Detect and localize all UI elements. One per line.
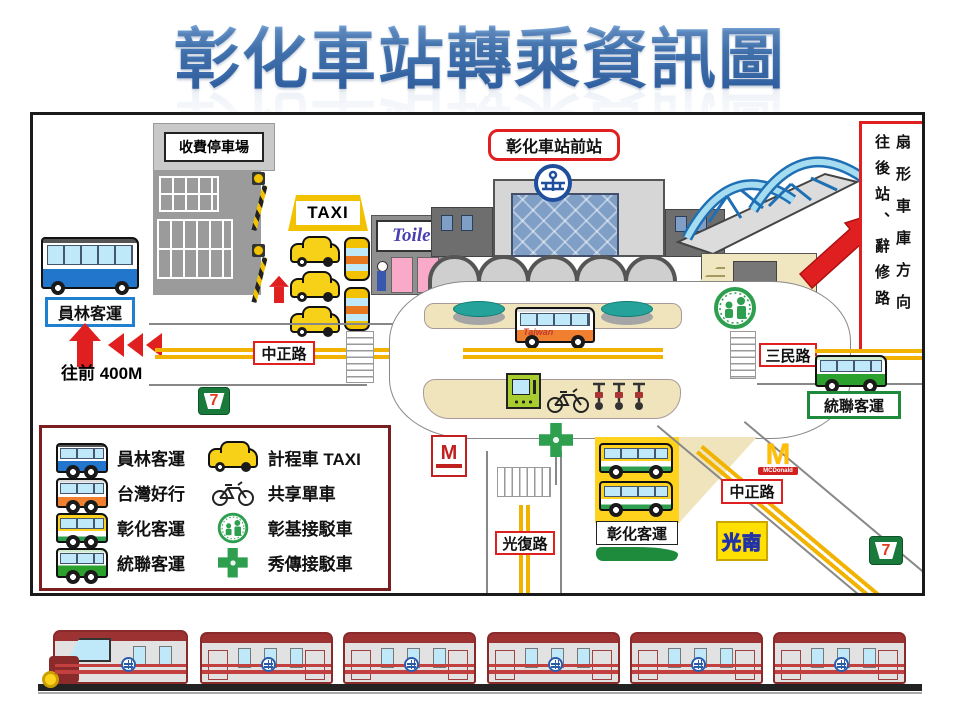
legend-item: 秀傳接駁車 <box>207 547 380 578</box>
crosswalk <box>730 331 756 379</box>
taxi-sign-label: TAXI <box>296 201 360 225</box>
train-car <box>343 632 476 684</box>
changhua-terminal-label: 彰化客運 <box>596 521 678 545</box>
rear-station-direction-sign: 往後站、辭修路 扇形車庫方向 <box>859 121 925 353</box>
changhua-bus-icon <box>56 513 108 543</box>
legend-item: 員林客運 <box>56 442 207 473</box>
legend: 員林客運 台灣好行 彰化客運 統聯客運 計程車 TAXI <box>39 425 391 591</box>
road-edge <box>149 384 367 386</box>
wing-window <box>441 215 453 231</box>
legend-item: 台灣好行 <box>56 477 207 508</box>
tonglian-stop-label: 統聯客運 <box>807 391 901 419</box>
scooter-parking-icon <box>589 379 651 418</box>
kuangnan-store-sign: 光南 <box>716 521 768 561</box>
mcdonalds-icon: M MCDonald <box>758 443 798 477</box>
up-arrow-icon <box>269 276 289 305</box>
toilet-door <box>391 257 413 293</box>
showchwan-shuttle-icon <box>207 548 259 578</box>
wing-window <box>461 215 473 231</box>
barrier-gate-icon <box>252 172 265 185</box>
direction-text-rear: 往後站、辭修路 <box>871 134 892 340</box>
station-front-sign: 彰化車站前站 <box>488 129 620 161</box>
transfer-map: 收費停車場 TAXI Toilet 彰化車站前站 <box>30 112 925 596</box>
man-icon <box>374 261 388 293</box>
taiwan-trip-bus-icon <box>56 478 108 508</box>
train-car <box>630 632 763 684</box>
barrier-gate-icon <box>252 244 265 257</box>
mos-burger-icon: M <box>431 435 467 477</box>
plaza-centerline <box>463 348 663 359</box>
parking-sign: 收費停車場 <box>164 132 264 162</box>
taxi-icon <box>290 278 340 298</box>
parking-grid <box>157 219 233 279</box>
fountain-icon <box>453 301 505 317</box>
walk-hint-label: 往前 400M <box>61 359 142 384</box>
train-car <box>487 632 620 684</box>
bike-rental-kiosk-icon <box>506 373 541 409</box>
changhua-bus-icon <box>599 443 673 473</box>
direction-text-depot: 扇形車庫方向 <box>892 134 913 340</box>
changhua-bus-icon <box>599 481 673 511</box>
yuanlin-bus-icon <box>56 443 108 473</box>
bus-stop-sign-icon <box>344 237 370 281</box>
train-car <box>773 632 906 684</box>
seven-eleven-icon: 7 <box>198 387 230 415</box>
terminal-landscape <box>596 547 678 561</box>
taxi-icon <box>207 443 259 473</box>
taxi-stand-sign: TAXI <box>288 195 368 231</box>
tonglian-bus-icon <box>56 548 108 578</box>
fountain-icon <box>601 301 653 317</box>
legend-item: 彰基接駁車 <box>207 512 380 543</box>
yuanlin-bus-icon <box>41 237 139 289</box>
shared-bike-icon <box>207 478 259 508</box>
tra-logo-icon <box>533 163 573 203</box>
rail-shadow <box>38 692 922 694</box>
cch-shuttle-icon <box>207 513 259 543</box>
bicycle-icon <box>546 387 590 418</box>
slide: 彰化車站轉乘資訊圖 彰化車站轉乘資訊圖 收費停車場 TAXI Toilet 彰化… <box>0 0 960 720</box>
guangfu-road-label: 光復路 <box>495 531 555 555</box>
road-edge <box>486 451 488 593</box>
crosswalk <box>346 331 374 383</box>
crosswalk <box>497 467 551 497</box>
train-locomotive <box>53 630 188 684</box>
rail-track <box>38 684 922 691</box>
legend-item: 彰化客運 <box>56 512 207 543</box>
seven-eleven-icon: 7 <box>869 536 903 565</box>
zhongzheng-west-road-label: 中正路 <box>253 341 315 365</box>
left-arrows-icon <box>105 333 162 362</box>
legend-item: 統聯客運 <box>56 547 207 578</box>
taiwan-trip-bus-icon: Taiwan <box>515 307 595 343</box>
legend-item: 共享單車 <box>207 477 380 508</box>
taxi-icon <box>290 243 340 263</box>
sign-pole <box>555 457 557 485</box>
road-edge <box>149 323 401 325</box>
legend-item: 計程車 TAXI <box>207 442 380 473</box>
train-car <box>200 632 333 684</box>
zhongzheng-south-road-label: 中正路 <box>721 479 783 504</box>
cch-shuttle-stop-icon <box>713 286 757 330</box>
parking-grid <box>159 176 219 212</box>
sanmin-road-label: 三民路 <box>759 343 817 367</box>
tonglian-bus-icon <box>815 355 887 387</box>
road-edge <box>560 451 562 593</box>
